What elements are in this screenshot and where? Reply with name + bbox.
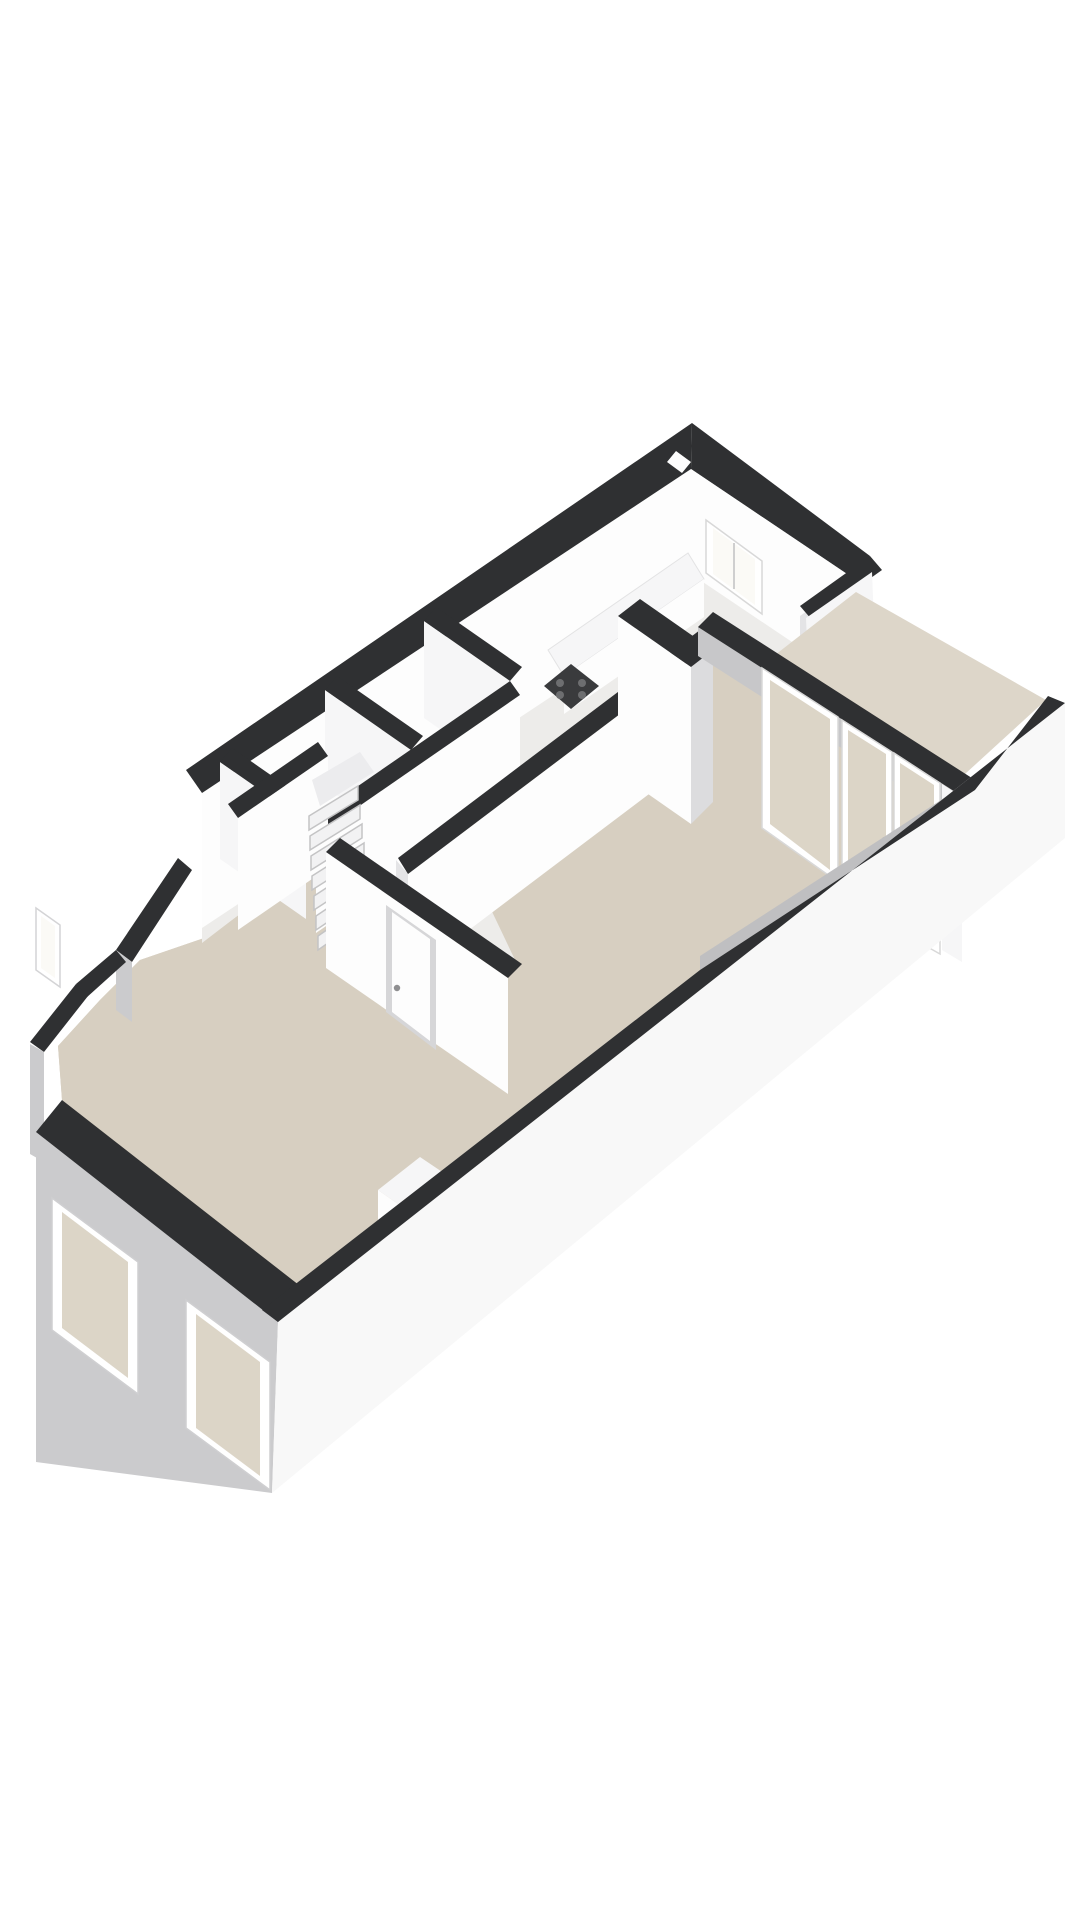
burner [556,679,564,687]
burner [578,679,586,687]
left-facade-window [36,908,60,987]
hallway-door-handle [394,985,400,991]
burner [556,691,564,699]
burner [578,691,586,699]
left-facade-window-glass [41,916,55,978]
floorplan-canvas [0,0,1080,1920]
column-right-face [691,650,713,824]
floorplan-3d-render [0,0,1080,1920]
